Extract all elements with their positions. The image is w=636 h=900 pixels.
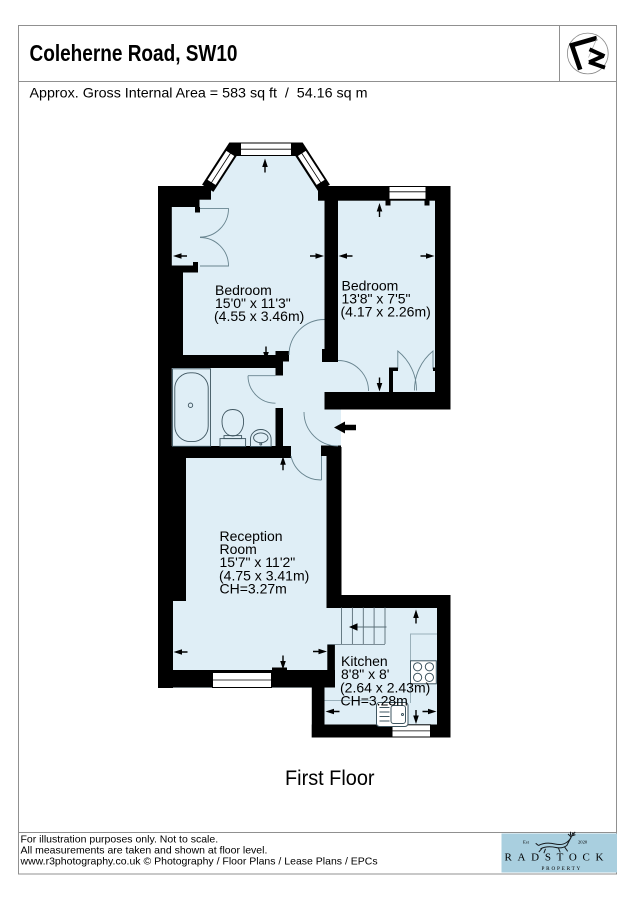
svg-text:(4.17 x 2.26m): (4.17 x 2.26m) xyxy=(341,304,431,320)
svg-text:CH=3.27m: CH=3.27m xyxy=(220,581,287,597)
svg-text:2020: 2020 xyxy=(578,839,588,844)
svg-text:Est: Est xyxy=(523,839,530,844)
svg-text:First Floor: First Floor xyxy=(285,766,375,790)
svg-text:(4.55 x 3.46m): (4.55 x 3.46m) xyxy=(214,308,304,324)
svg-text:PROPERTY: PROPERTY xyxy=(542,866,583,872)
svg-text:CH=3.28m: CH=3.28m xyxy=(341,693,408,709)
svg-text:www.r3photography.co.uk © Phot: www.r3photography.co.uk © Photography / … xyxy=(20,855,378,867)
svg-text:Approx. Gross Internal Area =: Approx. Gross Internal Area = 583 sq ft … xyxy=(30,85,368,101)
svg-text:RADSTOCK: RADSTOCK xyxy=(505,852,610,864)
svg-text:Coleherne Road, SW10: Coleherne Road, SW10 xyxy=(30,40,238,66)
